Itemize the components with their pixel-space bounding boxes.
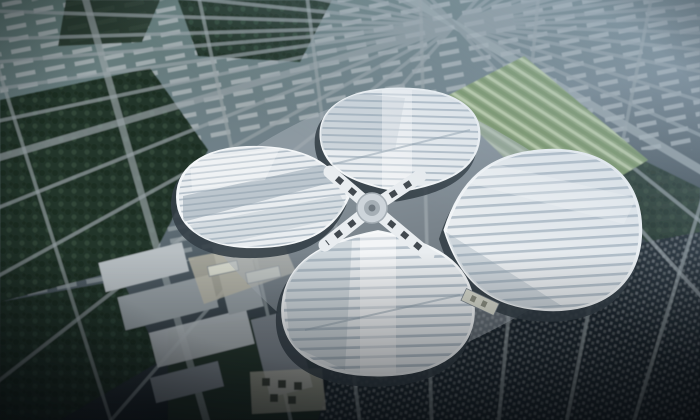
bottom-shadow	[0, 0, 700, 420]
aerial-rendering	[0, 0, 700, 420]
clover-exhibition-center-scene	[0, 0, 700, 420]
